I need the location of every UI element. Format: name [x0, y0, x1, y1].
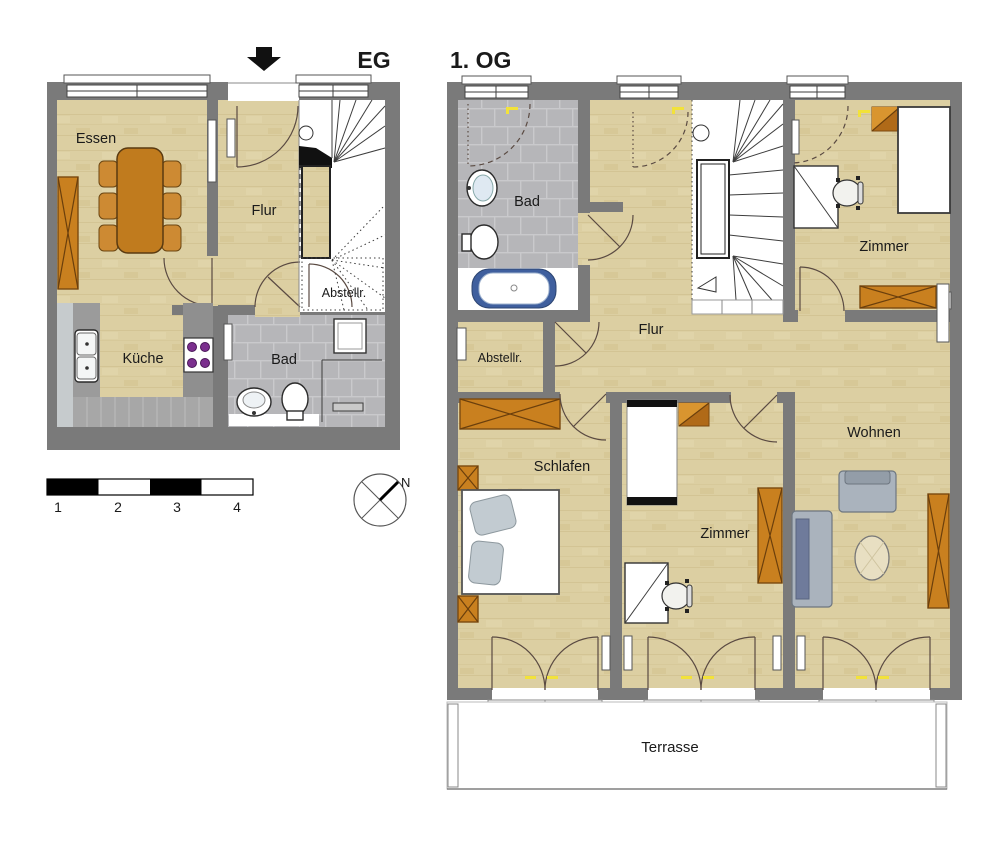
desk-icon — [794, 166, 838, 228]
radiator — [224, 324, 232, 360]
og-label-abstellraum: Abstellr. — [478, 351, 522, 365]
scale-label-3: 3 — [173, 499, 181, 515]
bed-icon — [898, 107, 950, 213]
coffee-table-icon — [855, 536, 889, 580]
og-window-zimmer — [787, 76, 848, 98]
niche — [457, 328, 466, 360]
og-label-bad: Bad — [514, 194, 540, 210]
og-stairwell — [697, 160, 729, 258]
eg-label-kueche: Küche — [122, 351, 163, 367]
compass-north-label: N — [401, 475, 410, 490]
og-label-schlafen: Schlafen — [534, 459, 590, 475]
wardrobe-icon — [758, 488, 782, 583]
og-flur-gap — [783, 322, 795, 392]
og-label-terrasse: Terrasse — [641, 739, 699, 756]
entrance-arrow-icon — [247, 47, 281, 71]
sideboard-icon — [860, 286, 936, 308]
desk-icon — [625, 563, 668, 623]
og-flur-pocket — [555, 322, 590, 392]
eg-window-top-left — [64, 75, 210, 97]
kitchen-counter-edge — [57, 303, 73, 427]
radiator — [208, 120, 216, 182]
og-label-zimmer-top: Zimmer — [859, 239, 908, 255]
og-window-flur — [617, 76, 681, 98]
floorplan-page: EG 1. OG — [0, 0, 1000, 860]
og-window-bad — [462, 76, 531, 98]
og-plan: Bad Flur Abstellr. Zimmer Schlafen Zimme… — [447, 76, 962, 789]
og-wall-stub — [578, 202, 623, 212]
wardrobe-icon — [460, 399, 560, 429]
shelf-icon — [792, 120, 799, 154]
nightstand-icon — [458, 596, 478, 622]
corner-cabinet-icon — [872, 107, 900, 131]
eg-label-abstellraum: Abstellr. — [322, 286, 366, 300]
scale-bar: 1 2 3 4 — [47, 479, 253, 515]
radiator — [797, 636, 805, 670]
scale-label-4: 4 — [233, 499, 241, 515]
kitchen-sink-icon — [75, 330, 98, 382]
radiator — [624, 636, 632, 670]
og-room-flur-floor — [590, 100, 692, 392]
og-opening-bad — [578, 213, 590, 265]
eg-window-top-right — [296, 75, 371, 97]
eg-entrance-opening — [228, 82, 299, 101]
stove-icon — [184, 338, 213, 372]
eg-stair-start-circle — [299, 126, 313, 140]
armchair-icon — [839, 471, 896, 512]
scale-label-1: 1 — [54, 499, 62, 515]
og-opening-zimmer-top — [798, 310, 845, 322]
og-flur-under-stairs — [692, 314, 783, 392]
sofa-icon — [792, 511, 832, 607]
nightstand-icon — [458, 466, 478, 490]
bath-floor-strip — [229, 414, 319, 426]
og-stair-start-circle — [693, 125, 709, 141]
sink-icon — [467, 170, 497, 206]
dining-table — [117, 148, 163, 253]
wardrobe-icon — [928, 494, 949, 608]
eg-stair-landing — [302, 166, 330, 258]
radiator — [937, 284, 949, 342]
eg-label-flur: Flur — [252, 203, 277, 219]
scale-label-2: 2 — [114, 499, 122, 515]
corner-cabinet-icon — [679, 403, 709, 426]
og-label-flur: Flur — [639, 322, 664, 338]
eg-label-bad: Bad — [271, 352, 297, 368]
og-label-wohnen: Wohnen — [847, 425, 901, 441]
washing-machine-icon — [334, 319, 366, 353]
double-bed-icon — [462, 490, 559, 594]
og-label-zimmer-mid: Zimmer — [700, 526, 749, 542]
bed-icon — [627, 400, 677, 505]
radiator — [227, 119, 235, 157]
eg-opening-flur-bad — [255, 303, 300, 317]
compass-icon: N — [354, 474, 410, 526]
eg-label-essen: Essen — [76, 131, 116, 147]
eg-title: EG — [357, 47, 390, 73]
sink-icon — [237, 388, 271, 416]
floorplan-drawing: EG 1. OG — [0, 0, 1000, 860]
bathtub-icon — [472, 269, 556, 308]
og-title: 1. OG — [450, 47, 511, 73]
radiator — [773, 636, 781, 670]
eg-plan: Essen Flur Abstellr. Küche Bad — [47, 75, 400, 450]
radiator — [602, 636, 610, 670]
og-stair-landing-strip — [692, 300, 783, 314]
